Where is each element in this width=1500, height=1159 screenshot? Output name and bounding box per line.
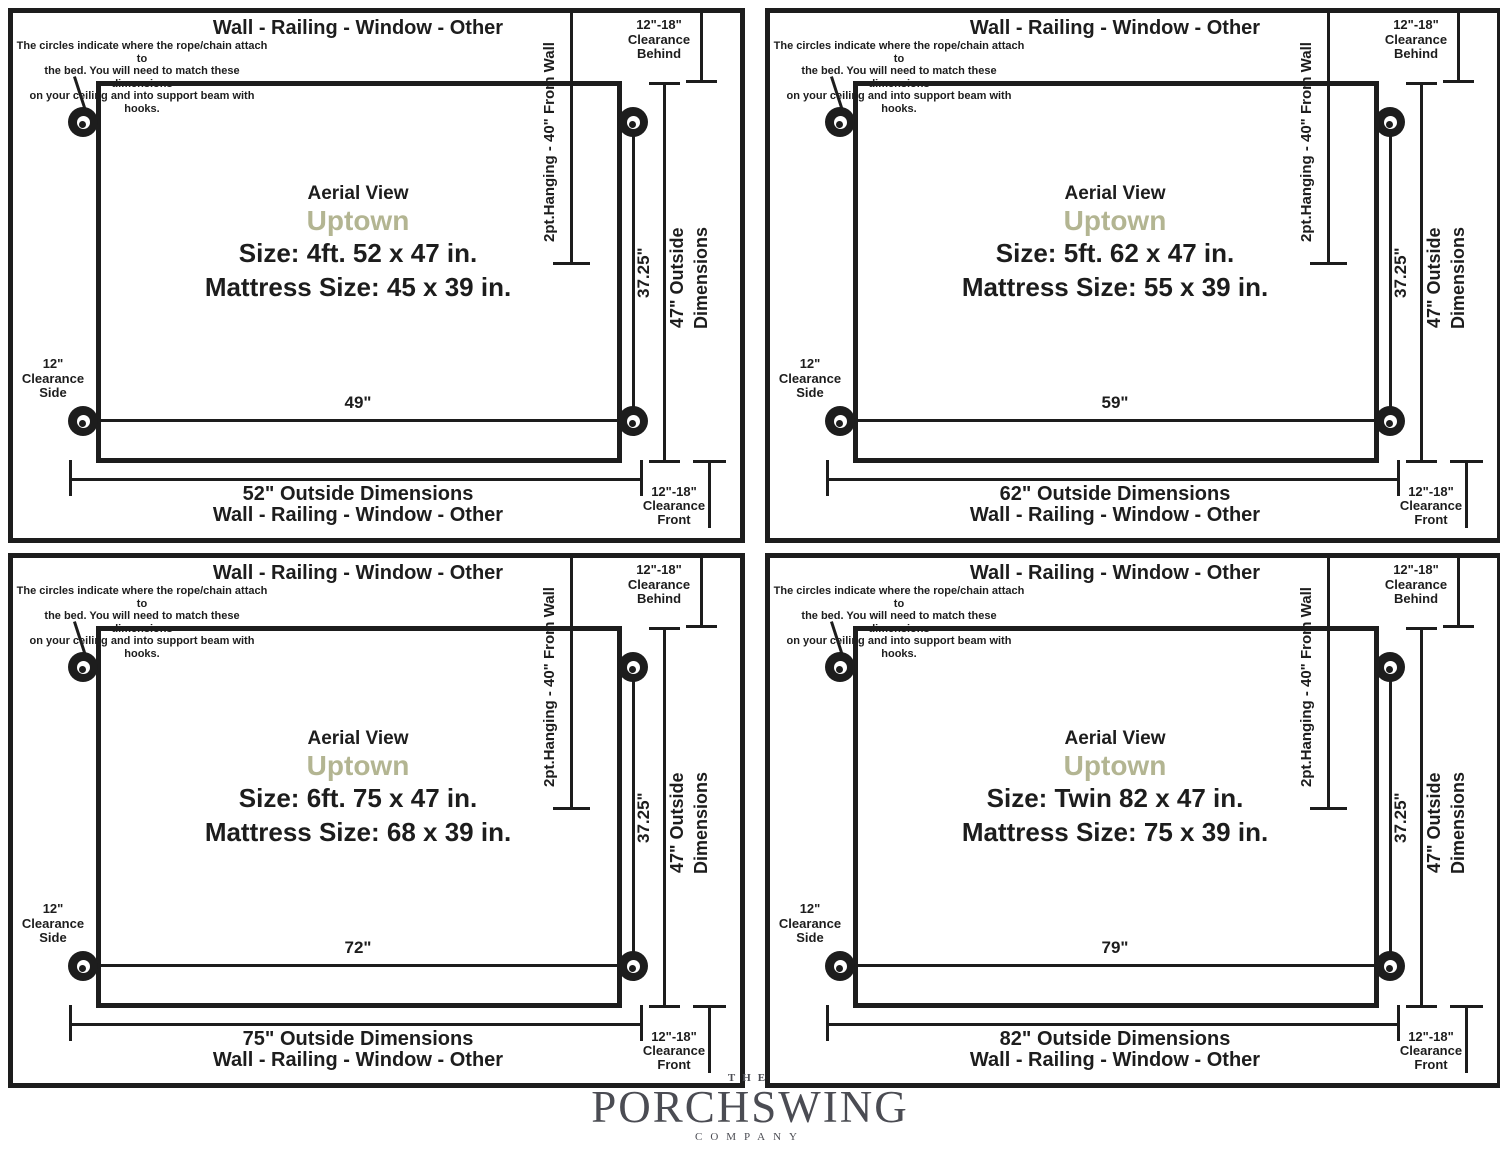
outside-depth-cap-bottom [649,460,680,463]
clearance-front-line-1: 12"-18" [1371,485,1491,499]
aerial-view-label: Aerial View [58,183,658,205]
wall-label-bottom: Wall - Railing - Window - Other [815,504,1415,527]
attachment-point-icon-bottom-left [68,406,98,436]
attachment-point-icon-bottom-right [618,406,648,436]
clearance-behind-line [700,558,703,627]
note-line-1: The circles indicate where the rope/chai… [16,40,268,65]
clearance-behind-line [1457,558,1460,627]
attachment-point-icon-top-left [68,652,98,682]
outside-depth-label-line-2: Dimensions [691,148,715,408]
clearance-behind-cap [1443,80,1474,83]
outside-depth-label-line-2: Dimensions [691,693,715,953]
outside-width-label: 52" Outside Dimensions [58,483,658,506]
size-label: Size: 5ft. 62 x 47 in. [815,236,1415,270]
bed-center-text: Aerial View Uptown Size: Twin 82 x 47 in… [815,728,1415,849]
clearance-front-line-1: 12"-18" [1371,1030,1491,1044]
clearance-front-label: 12"-18" Clearance Front [1371,485,1491,527]
note-line-1: The circles indicate where the rope/chai… [16,585,268,610]
clearance-side-label: 12" Clearance Side [770,902,850,946]
clearance-behind-line [1457,13,1460,82]
model-name: Uptown [58,750,658,781]
clearance-front-line-3: Front [614,513,734,527]
outside-depth-dimension-line [1420,627,1423,1008]
logo-company-text: COMPANY [0,1131,1500,1143]
outside-depth-dimension-line [663,627,666,1008]
outside-depth-label-line-1: 47" Outside [667,148,691,408]
outside-width-label: 75" Outside Dimensions [58,1028,658,1051]
attach-width-label: 72" [158,938,558,958]
attachment-point-icon-top-right [1375,107,1405,137]
outside-width-dimension-line [828,1023,1399,1026]
clearance-side-line-1: 12" [770,902,850,917]
mattress-size-label: Mattress Size: 68 x 39 in. [58,815,658,849]
outside-depth-dimension-line [1420,82,1423,463]
clearance-front-label: 12"-18" Clearance Front [614,485,734,527]
clearance-front-line-2: Clearance [614,499,734,513]
swing-dimension-panel: Wall - Railing - Window - Other The circ… [8,8,745,543]
logo-name-text: PORCHSWING [0,1084,1500,1130]
clearance-side-line-1: 12" [13,357,93,372]
clearance-front-line [708,1005,711,1073]
swing-dimension-panel: Wall - Railing - Window - Other The circ… [765,8,1500,543]
clearance-front-line-2: Clearance [614,1044,734,1058]
clearance-side-line-3: Side [770,386,850,401]
outside-depth-label-line-2: Dimensions [1448,148,1472,408]
porchswing-company-logo: THE PORCHSWING COMPANY [0,1072,1500,1143]
model-name: Uptown [58,205,658,236]
clearance-front-line-1: 12"-18" [614,1030,734,1044]
bed-center-text: Aerial View Uptown Size: 6ft. 75 x 47 in… [58,728,658,849]
outside-depth-cap-bottom [1406,460,1437,463]
swing-dimension-panel: Wall - Railing - Window - Other The circ… [765,553,1500,1088]
clearance-behind-line [700,13,703,82]
outside-width-label: 62" Outside Dimensions [815,483,1415,506]
mattress-size-label: Mattress Size: 75 x 39 in. [815,815,1415,849]
attach-width-label: 49" [158,393,558,413]
mattress-size-label: Mattress Size: 55 x 39 in. [815,270,1415,304]
clearance-side-line-3: Side [13,931,93,946]
outside-width-dimension-line [828,478,1399,481]
clearance-side-line-3: Side [13,386,93,401]
dimension-panels-grid: Wall - Railing - Window - Other The circ… [8,8,1492,1088]
clearance-side-line-1: 12" [13,902,93,917]
attach-width-connector-line [83,419,633,422]
outside-width-dimension-line [71,478,642,481]
size-label: Size: Twin 82 x 47 in. [815,781,1415,815]
attachment-point-icon-bottom-left [68,951,98,981]
attach-width-connector-line [83,964,633,967]
clearance-side-line-2: Clearance [13,917,93,932]
outside-depth-label-line-1: 47" Outside [1424,148,1448,408]
clearance-front-line-2: Clearance [1371,1044,1491,1058]
outside-depth-label-line-1: 47" Outside [667,693,691,953]
attachment-point-icon-bottom-left [825,951,855,981]
size-label: Size: 6ft. 75 x 47 in. [58,781,658,815]
clearance-side-line-1: 12" [770,357,850,372]
attachment-point-icon-top-left [825,652,855,682]
attachment-point-icon-top-left [825,107,855,137]
clearance-front-line-3: Front [614,1058,734,1072]
attachment-point-icon-bottom-right [618,951,648,981]
outside-depth-cap-bottom [1406,1005,1437,1008]
model-name: Uptown [815,750,1415,781]
attachment-point-icon-top-left [68,107,98,137]
mattress-size-label: Mattress Size: 45 x 39 in. [58,270,658,304]
note-line-1: The circles indicate where the rope/chai… [773,40,1025,65]
note-line-1: The circles indicate where the rope/chai… [773,585,1025,610]
attach-width-connector-line [840,419,1390,422]
attachment-point-icon-bottom-right [1375,951,1405,981]
clearance-front-line-3: Front [1371,513,1491,527]
attachment-point-icon-top-right [618,652,648,682]
bed-center-text: Aerial View Uptown Size: 4ft. 52 x 47 in… [58,183,658,304]
clearance-side-label: 12" Clearance Side [770,357,850,401]
attach-width-connector-line [840,964,1390,967]
clearance-front-line [708,460,711,528]
clearance-side-line-2: Clearance [770,372,850,387]
outside-width-dimension-line [71,1023,642,1026]
outside-depth-cap-top [649,627,680,630]
clearance-behind-cap [1443,625,1474,628]
outside-depth-cap-top [1406,627,1437,630]
swing-dimension-panel: Wall - Railing - Window - Other The circ… [8,553,745,1088]
clearance-front-line [1465,1005,1468,1073]
aerial-view-label: Aerial View [815,183,1415,205]
wall-label-bottom: Wall - Railing - Window - Other [58,1049,658,1072]
outside-depth-cap-top [1406,82,1437,85]
clearance-front-line-2: Clearance [1371,499,1491,513]
attachment-point-icon-bottom-left [825,406,855,436]
attachment-point-icon-top-right [618,107,648,137]
clearance-front-label: 12"-18" Clearance Front [614,1030,734,1072]
clearance-front-label: 12"-18" Clearance Front [1371,1030,1491,1072]
outside-depth-cap-top [649,82,680,85]
attachment-point-icon-top-right [1375,652,1405,682]
size-label: Size: 4ft. 52 x 47 in. [58,236,658,270]
outside-depth-label-line-2: Dimensions [1448,693,1472,953]
bed-center-text: Aerial View Uptown Size: 5ft. 62 x 47 in… [815,183,1415,304]
clearance-front-line [1465,460,1468,528]
clearance-side-label: 12" Clearance Side [13,357,93,401]
aerial-view-label: Aerial View [58,728,658,750]
clearance-side-line-3: Side [770,931,850,946]
attachment-point-icon-bottom-right [1375,406,1405,436]
outside-depth-label-line-1: 47" Outside [1424,693,1448,953]
model-name: Uptown [815,205,1415,236]
outside-depth-dimension-line [663,82,666,463]
attach-width-label: 59" [915,393,1315,413]
attach-width-label: 79" [915,938,1315,958]
clearance-side-line-2: Clearance [770,917,850,932]
aerial-view-label: Aerial View [815,728,1415,750]
clearance-behind-cap [686,80,717,83]
wall-label-bottom: Wall - Railing - Window - Other [58,504,658,527]
clearance-behind-cap [686,625,717,628]
outside-depth-cap-bottom [649,1005,680,1008]
clearance-side-label: 12" Clearance Side [13,902,93,946]
clearance-side-line-2: Clearance [13,372,93,387]
outside-width-label: 82" Outside Dimensions [815,1028,1415,1051]
wall-label-bottom: Wall - Railing - Window - Other [815,1049,1415,1072]
clearance-front-line-1: 12"-18" [614,485,734,499]
clearance-front-line-3: Front [1371,1058,1491,1072]
